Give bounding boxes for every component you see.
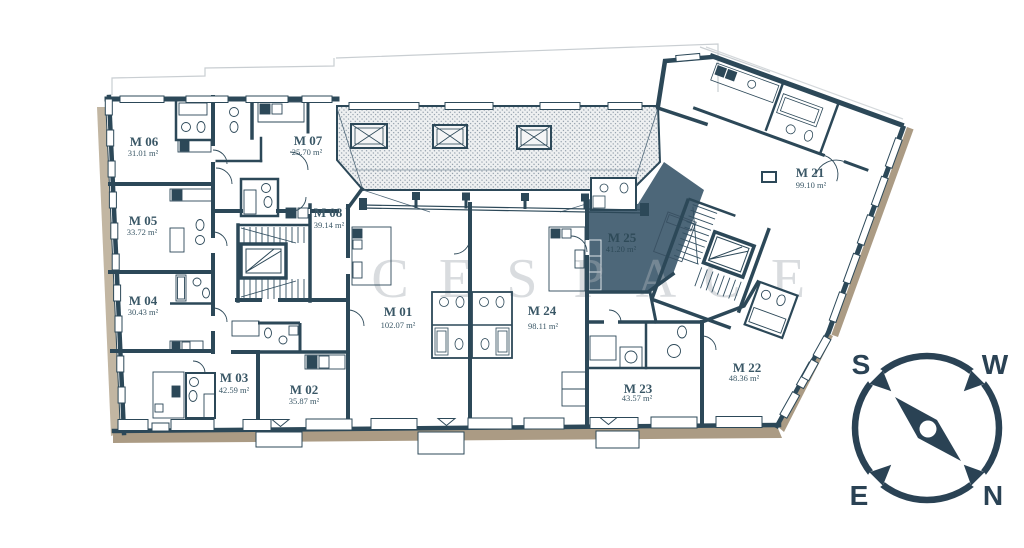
svg-text:M 06: M 06 (130, 134, 159, 149)
svg-text:M 05: M 05 (129, 213, 158, 228)
svg-text:M 08: M 08 (314, 205, 343, 220)
svg-text:98.11 m²: 98.11 m² (528, 321, 559, 331)
svg-text:M 02: M 02 (290, 382, 319, 397)
svg-text:41.20 m²: 41.20 m² (606, 244, 637, 254)
svg-text:M 25: M 25 (608, 230, 637, 245)
svg-text:E: E (850, 480, 869, 511)
svg-text:W: W (982, 349, 1009, 380)
svg-text:35.87 m²: 35.87 m² (289, 396, 320, 406)
svg-text:31.01 m²: 31.01 m² (128, 148, 159, 158)
svg-text:M 03: M 03 (220, 370, 249, 385)
svg-text:M 04: M 04 (129, 293, 158, 308)
svg-text:N: N (983, 480, 1003, 511)
svg-text:42.59 m²: 42.59 m² (219, 385, 250, 395)
svg-text:M 07: M 07 (294, 133, 323, 148)
svg-text:S: S (506, 248, 537, 310)
svg-text:M 01: M 01 (384, 304, 413, 319)
svg-text:M 24: M 24 (528, 303, 557, 318)
svg-text:33.72 m²: 33.72 m² (127, 227, 158, 237)
svg-text:M 21: M 21 (796, 165, 825, 180)
svg-text:30.43 m²: 30.43 m² (128, 307, 159, 317)
svg-text:S: S (852, 349, 871, 380)
svg-text:C: C (371, 248, 408, 310)
svg-text:99.10 m²: 99.10 m² (796, 180, 827, 190)
svg-text:39.14 m²: 39.14 m² (314, 220, 345, 230)
svg-text:43.57 m²: 43.57 m² (622, 393, 653, 403)
svg-text:48.36 m²: 48.36 m² (729, 373, 760, 383)
svg-text:25.70 m²: 25.70 m² (292, 147, 323, 157)
svg-text:102.07 m²: 102.07 m² (381, 320, 416, 330)
